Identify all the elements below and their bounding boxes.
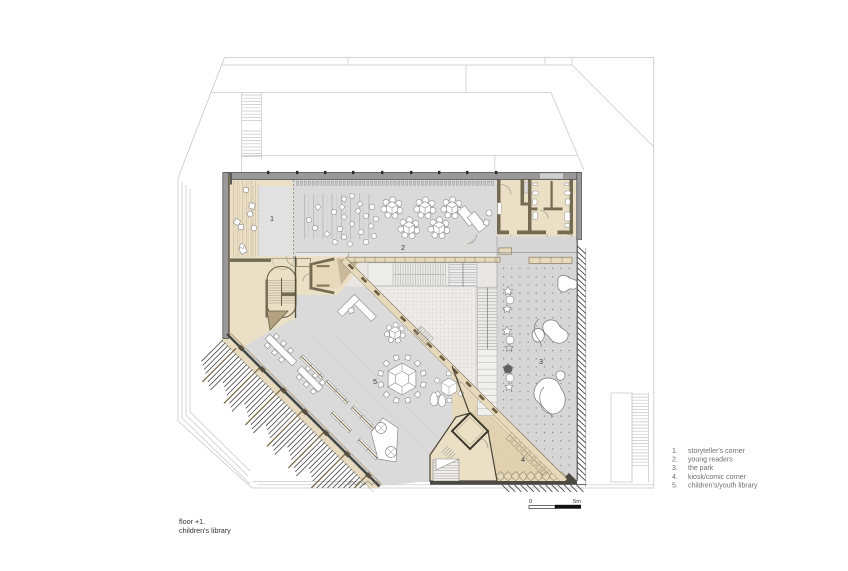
svg-text:children's/youth library: children's/youth library bbox=[688, 482, 758, 489]
svg-text:the park: the park bbox=[688, 465, 714, 472]
svg-text:floor +1.: floor +1. bbox=[179, 517, 205, 526]
svg-text:3: 3 bbox=[539, 357, 543, 366]
svg-text:5m: 5m bbox=[573, 499, 581, 505]
svg-text:0: 0 bbox=[529, 499, 532, 505]
svg-text:1.: 1. bbox=[672, 448, 678, 455]
svg-text:1: 1 bbox=[270, 214, 274, 223]
svg-text:children's library: children's library bbox=[179, 526, 231, 535]
svg-text:5: 5 bbox=[373, 377, 377, 386]
svg-text:4: 4 bbox=[521, 455, 525, 464]
svg-text:4.: 4. bbox=[672, 474, 678, 481]
svg-text:5.: 5. bbox=[672, 482, 678, 489]
svg-text:2: 2 bbox=[401, 243, 405, 252]
svg-text:kiosk/comic corner: kiosk/comic corner bbox=[688, 474, 747, 481]
svg-text:young readers: young readers bbox=[688, 457, 733, 464]
svg-text:storyteller's corner: storyteller's corner bbox=[688, 448, 746, 455]
svg-text:2.: 2. bbox=[672, 457, 678, 464]
svg-text:3.: 3. bbox=[672, 465, 678, 472]
